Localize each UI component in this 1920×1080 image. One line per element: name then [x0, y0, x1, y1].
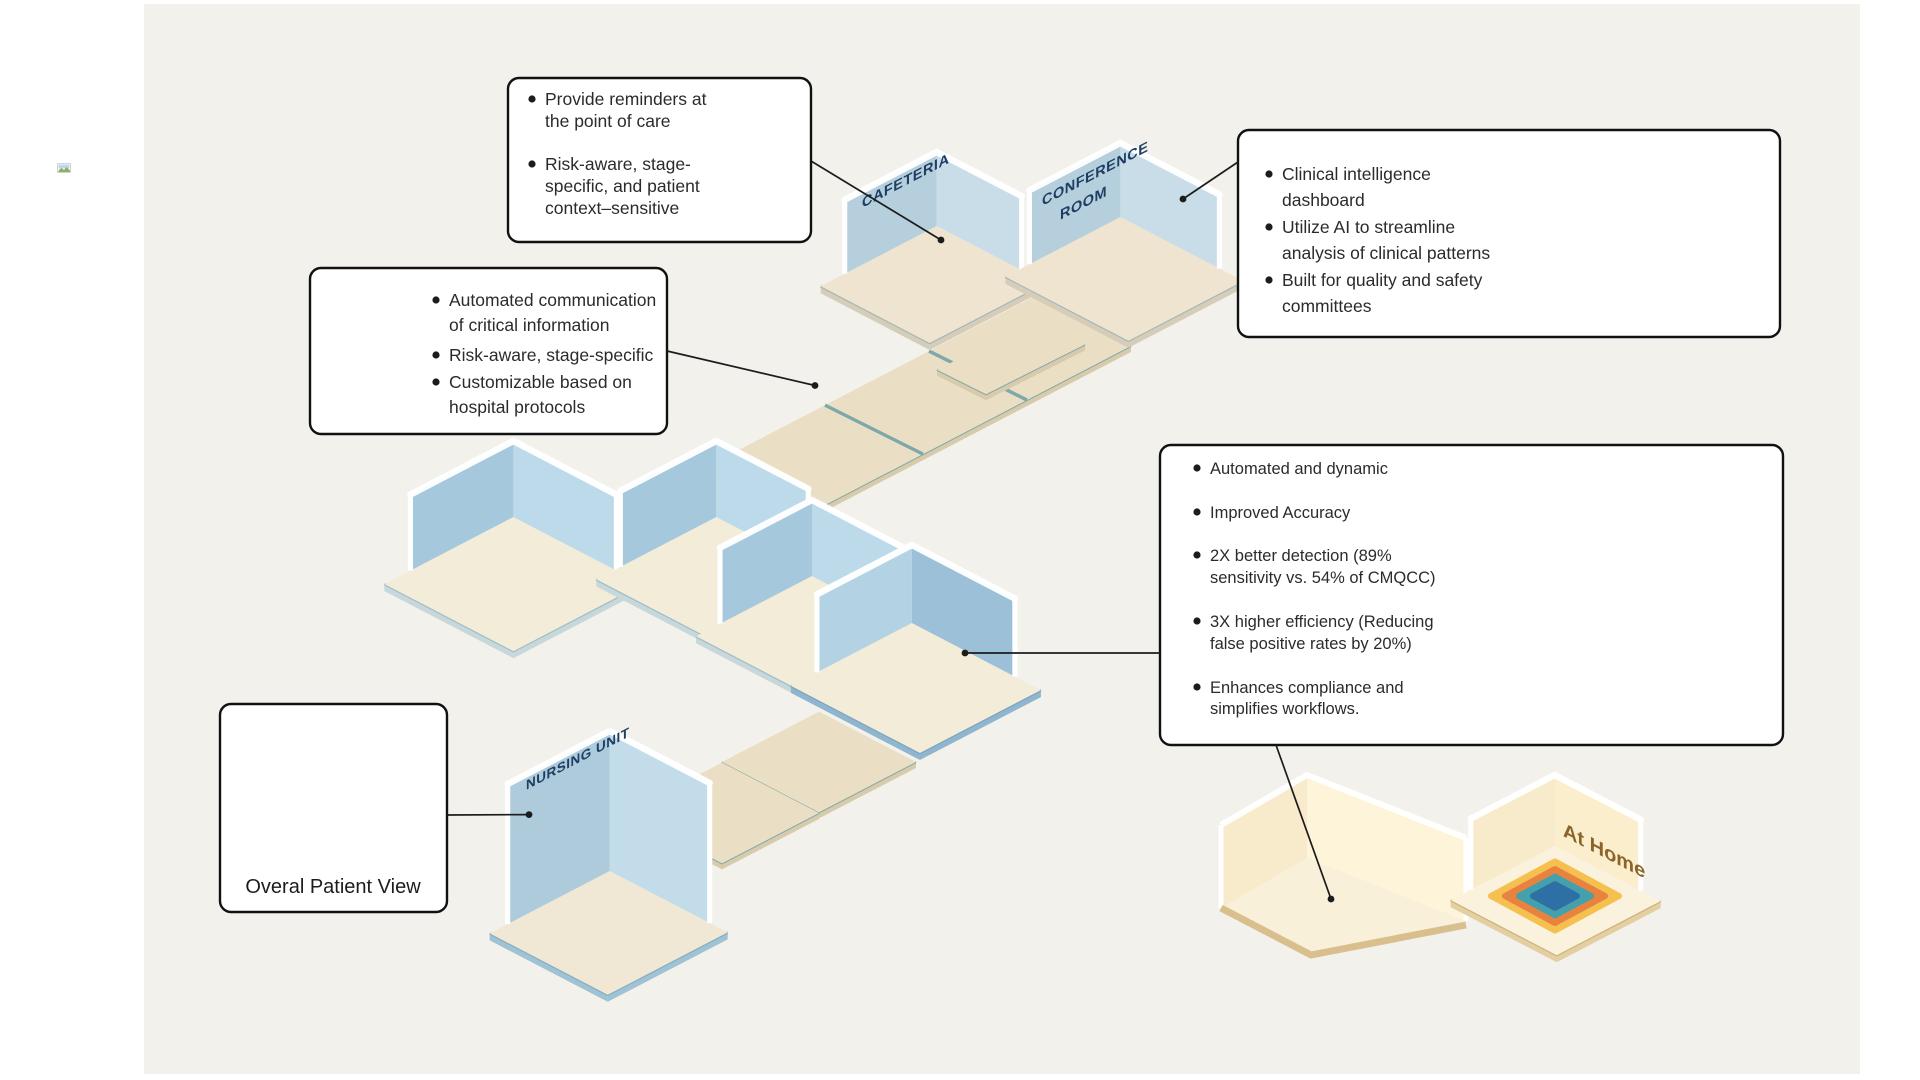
svg-text:Clinical intelligence: Clinical intelligence	[1282, 164, 1431, 184]
svg-text:Improved Accuracy: Improved Accuracy	[1210, 504, 1351, 522]
svg-text:sensitivity vs. 54% of CMQCC): sensitivity vs. 54% of CMQCC)	[1210, 569, 1436, 587]
svg-text:2X better detection (89%: 2X better detection (89%	[1210, 547, 1392, 565]
svg-text:hospital protocols: hospital protocols	[449, 397, 585, 417]
svg-text:dashboard: dashboard	[1282, 190, 1365, 210]
svg-text:Risk-aware, stage-specific: Risk-aware, stage-specific	[449, 345, 653, 365]
svg-text:Built for quality and safety: Built for quality and safety	[1282, 270, 1483, 290]
svg-text:simplifies workflows.: simplifies workflows.	[1210, 700, 1359, 718]
svg-text:Overal Patient View: Overal Patient View	[245, 876, 421, 898]
svg-text:Provide reminders at: Provide reminders at	[545, 89, 707, 109]
svg-text:the point of care: the point of care	[545, 111, 671, 131]
svg-text:Utilize AI to streamline: Utilize AI to streamline	[1282, 217, 1455, 237]
svg-text:Risk-aware, stage-: Risk-aware, stage-	[545, 154, 691, 174]
svg-text:Automated and dynamic: Automated and dynamic	[1210, 460, 1388, 478]
svg-text:3X higher efficiency (Reducing: 3X higher efficiency (Reducing	[1210, 613, 1434, 631]
svg-text:context–sensitive: context–sensitive	[545, 198, 679, 218]
svg-text:specific, and patient: specific, and patient	[545, 176, 700, 196]
svg-text:false positive rates by 20%): false positive rates by 20%)	[1210, 635, 1412, 653]
svg-text:analysis of clinical patterns: analysis of clinical patterns	[1282, 243, 1490, 263]
svg-text:Automated communication: Automated communication	[449, 290, 656, 310]
svg-text:of critical information: of critical information	[449, 315, 609, 335]
svg-text:committees: committees	[1282, 296, 1372, 316]
svg-text:Customizable based on: Customizable based on	[449, 372, 632, 392]
svg-text:Enhances compliance and: Enhances compliance and	[1210, 679, 1404, 697]
